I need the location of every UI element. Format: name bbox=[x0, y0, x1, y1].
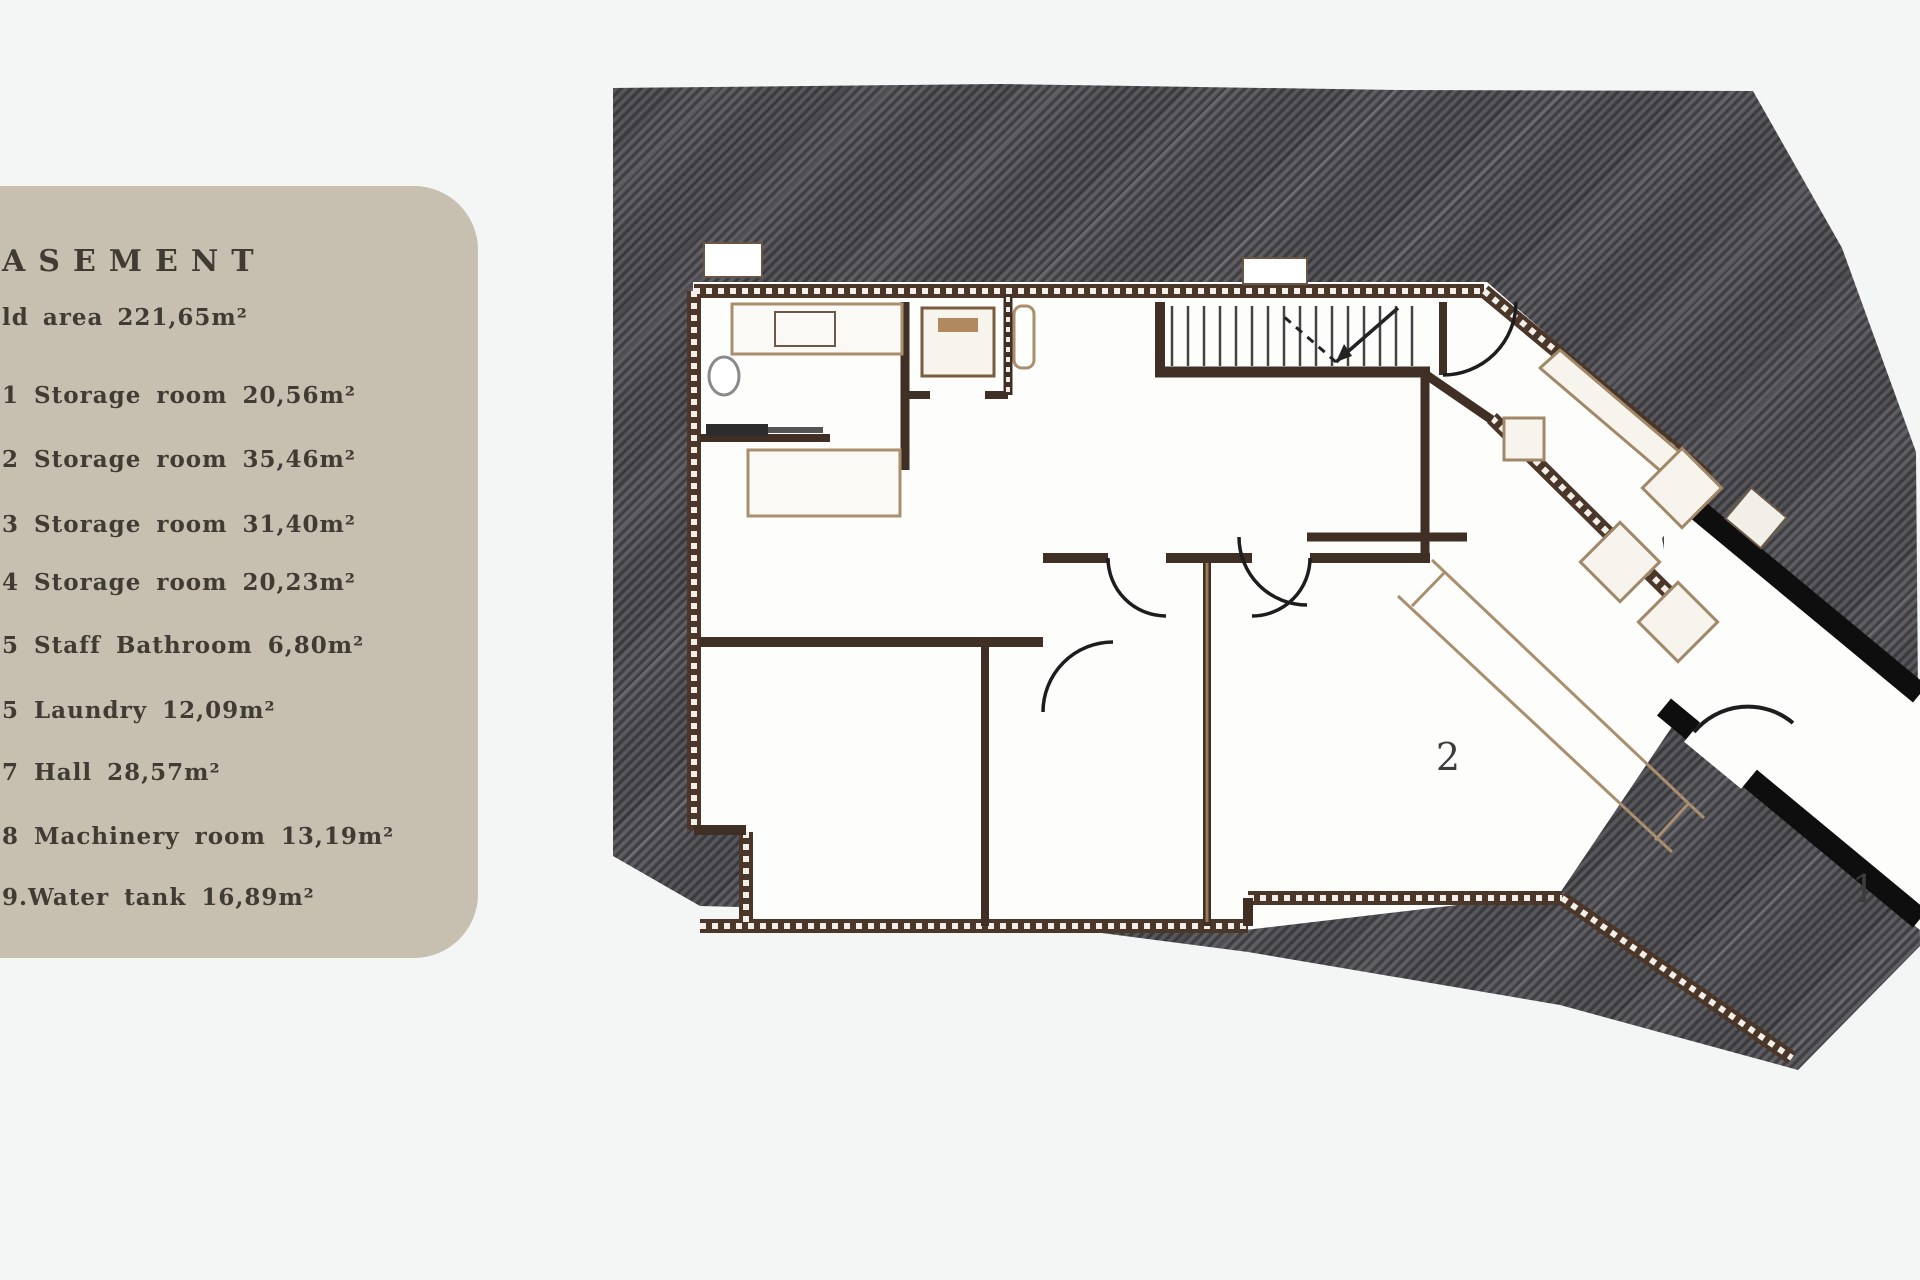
legend-item-machinery-room: 8 Machinery room 13,19m² bbox=[2, 823, 394, 850]
elevator-mechanism bbox=[938, 318, 978, 332]
legend-item-hall: 7 Hall 28,57m² bbox=[2, 759, 221, 786]
legend-subtitle: ld area 221,65m² bbox=[2, 304, 248, 331]
toilet bbox=[709, 357, 739, 395]
legend-item-storage-2: 2 Storage room 35,46m² bbox=[2, 446, 356, 473]
towel-bar-arm bbox=[768, 427, 823, 433]
legend-item-storage-4: 4 Storage room 20,23m² bbox=[2, 569, 356, 596]
legend-item-water-tank: 9.Water tank 16,89m² bbox=[2, 884, 315, 911]
shaft-box-left bbox=[704, 243, 762, 277]
legend-item-staff-bathroom: 5 Staff Bathroom 6,80m² bbox=[2, 632, 364, 659]
towel-bar bbox=[706, 424, 768, 436]
legend-panel: ASEMENT ld area 221,65m² 1 Storage room … bbox=[0, 186, 478, 958]
legend-item-storage-1: 1 Storage room 20,56m² bbox=[2, 382, 356, 409]
legend-item-laundry: 5 Laundry 12,09m² bbox=[2, 697, 276, 724]
room-label-1: 1 bbox=[1852, 867, 1876, 911]
room-label-2: 2 bbox=[1436, 735, 1460, 779]
side-table bbox=[1504, 418, 1544, 460]
floor-plan-page: 2 1 ASEMENT ld area 221,65m² 1 Storage r… bbox=[0, 0, 1920, 1280]
legend-title: ASEMENT bbox=[2, 244, 267, 279]
vent-box-top bbox=[1243, 258, 1307, 284]
legend-item-storage-3: 3 Storage room 31,40m² bbox=[2, 511, 356, 538]
laundry-counter bbox=[748, 450, 900, 516]
